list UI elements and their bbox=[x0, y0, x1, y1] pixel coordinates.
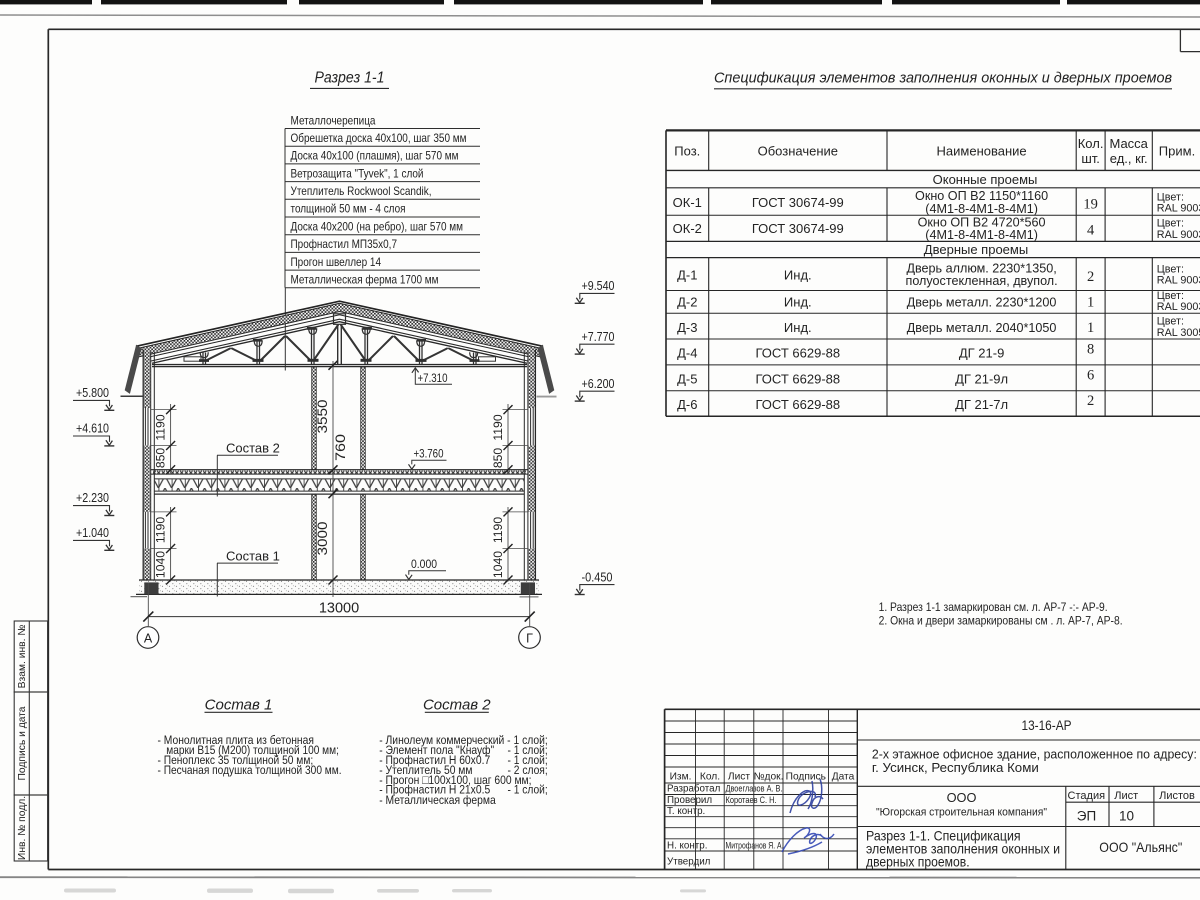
svg-text:ДГ 21-7л: ДГ 21-7л bbox=[955, 397, 1008, 412]
svg-text:+6.200: +6.200 bbox=[582, 376, 615, 391]
svg-text:Стадия: Стадия bbox=[1068, 790, 1106, 802]
svg-text:1: 1 bbox=[1087, 294, 1094, 310]
svg-text:ед., кг.: ед., кг. bbox=[1110, 151, 1148, 166]
svg-text:Д-3: Д-3 bbox=[677, 320, 697, 335]
svg-text:Наименование: Наименование bbox=[937, 143, 1027, 158]
svg-text:ОК-2: ОК-2 bbox=[673, 221, 702, 236]
svg-text:Доска 40х200 (на ребро), шаг 5: Доска 40х200 (на ребро), шаг 570 мм bbox=[291, 219, 464, 233]
svg-text:Утвердил: Утвердил bbox=[667, 856, 711, 867]
svg-text:ОК-1: ОК-1 bbox=[673, 195, 702, 210]
svg-text:0.000: 0.000 bbox=[411, 559, 437, 571]
svg-text:1. Разрез 1-1 замаркирован см.: 1. Разрез 1-1 замаркирован см. л. АР-7 -… bbox=[879, 600, 1108, 614]
svg-text:№док.: №док. bbox=[754, 771, 784, 782]
svg-text:Лист: Лист bbox=[1114, 790, 1138, 802]
svg-text:Доска 40х100 (плашмя), шаг 570: Доска 40х100 (плашмя), шаг 570 мм bbox=[291, 149, 459, 163]
svg-text:1040: 1040 bbox=[154, 551, 168, 578]
svg-text:Ветрозащита "Tyvek", 1 слой: Ветрозащита "Tyvek", 1 слой bbox=[291, 166, 424, 180]
svg-text:RAL 3005: RAL 3005 bbox=[1157, 327, 1200, 339]
svg-text:2. Окна и двери замаркированы: 2. Окна и двери замаркированы см . л. АР… bbox=[879, 614, 1123, 628]
svg-text:2: 2 bbox=[1087, 269, 1094, 285]
svg-text:+5.800: +5.800 bbox=[76, 385, 109, 400]
svg-text:1: 1 bbox=[1087, 320, 1094, 336]
svg-text:850: 850 bbox=[154, 448, 168, 469]
svg-text:Состав 2: Состав 2 bbox=[423, 696, 491, 713]
svg-text:Разработал: Разработал bbox=[667, 784, 721, 795]
svg-text:760: 760 bbox=[332, 434, 348, 461]
svg-text:Состав 1: Состав 1 bbox=[205, 696, 273, 713]
svg-text:Лист: Лист bbox=[728, 771, 750, 782]
svg-text:- 1 слой;: - 1 слой; bbox=[508, 783, 548, 797]
svg-text:RAL 9003: RAL 9003 bbox=[1157, 275, 1200, 287]
svg-text:Д-4: Д-4 bbox=[677, 346, 697, 361]
svg-text:3550: 3550 bbox=[314, 399, 330, 433]
svg-text:Утеплитель Rockwool Scandik,: Утеплитель Rockwool Scandik, bbox=[291, 184, 432, 198]
svg-text:Цвет:: Цвет: bbox=[1157, 218, 1184, 230]
svg-text:Металлочерепица: Металлочерепица bbox=[291, 113, 376, 127]
svg-text:дверных проемов.: дверных проемов. bbox=[866, 855, 970, 870]
svg-text:ДГ 21-9л: ДГ 21-9л bbox=[955, 371, 1008, 386]
svg-text:+4.610: +4.610 bbox=[76, 421, 109, 436]
svg-text:+7.770: +7.770 bbox=[582, 329, 615, 344]
svg-text:+9.540: +9.540 bbox=[582, 278, 615, 293]
svg-text:Д-1: Д-1 bbox=[677, 268, 697, 283]
svg-text:Цвет:: Цвет: bbox=[1157, 191, 1184, 203]
svg-text:(4М1-8-4М1-8-4М1): (4М1-8-4М1-8-4М1) bbox=[925, 202, 1038, 216]
svg-text:ООО "Альянс": ООО "Альянс" bbox=[1099, 839, 1182, 855]
svg-text:13-16-АР: 13-16-АР bbox=[1022, 717, 1072, 733]
svg-text:1190: 1190 bbox=[154, 517, 168, 543]
svg-text:Дверь металл. 2230*1200: Дверь металл. 2230*1200 bbox=[907, 295, 1057, 309]
svg-text:Подпись и дата: Подпись и дата bbox=[17, 706, 28, 780]
svg-text:+2.230: +2.230 bbox=[76, 490, 109, 505]
svg-text:Кол.: Кол. bbox=[1078, 136, 1104, 151]
svg-text:13000: 13000 bbox=[319, 601, 359, 617]
svg-text:"Югорская строительная компани: "Югорская строительная компания" bbox=[876, 807, 1047, 819]
svg-text:Т. контр.: Т. контр. bbox=[667, 806, 705, 817]
svg-text:Взам. инв. №: Взам. инв. № bbox=[17, 625, 28, 689]
svg-text:+7.310: +7.310 bbox=[418, 373, 448, 385]
svg-text:ГОСТ 6629-88: ГОСТ 6629-88 bbox=[755, 346, 840, 361]
svg-text:Дверные проемы: Дверные проемы bbox=[924, 242, 1028, 257]
svg-text:Металлическая ферма 1700 мм: Металлическая ферма 1700 мм bbox=[291, 273, 439, 287]
svg-text:2: 2 bbox=[1087, 393, 1094, 409]
svg-text:Цвет:: Цвет: bbox=[1157, 264, 1184, 276]
svg-text:Поз.: Поз. bbox=[674, 143, 700, 158]
svg-text:RAL 9003: RAL 9003 bbox=[1157, 229, 1200, 241]
svg-text:шт.: шт. bbox=[1081, 151, 1100, 166]
svg-text:Цвет:: Цвет: bbox=[1157, 290, 1184, 302]
svg-text:Прим.: Прим. bbox=[1159, 143, 1195, 158]
svg-text:Профнастил МП35х0,7: Профнастил МП35х0,7 bbox=[291, 237, 398, 251]
svg-text:Оконные проемы: Оконные проемы bbox=[933, 172, 1038, 187]
svg-text:Д-2: Д-2 bbox=[677, 294, 697, 309]
svg-text:RAL 9003: RAL 9003 bbox=[1157, 301, 1200, 313]
svg-text:Г: Г bbox=[526, 631, 533, 645]
svg-text:- Металлическая ферма: - Металлическая ферма bbox=[379, 793, 496, 807]
svg-text:ЭП: ЭП bbox=[1077, 809, 1096, 824]
svg-text:10: 10 bbox=[1119, 809, 1134, 824]
svg-text:+3.760: +3.760 bbox=[414, 448, 444, 460]
svg-text:полуостекленная, двупол.: полуостекленная, двупол. bbox=[906, 274, 1058, 288]
svg-text:+1.040: +1.040 bbox=[76, 525, 109, 540]
svg-text:ГОСТ 6629-88: ГОСТ 6629-88 bbox=[755, 371, 840, 386]
svg-text:Состав 1: Состав 1 bbox=[226, 548, 280, 563]
svg-text:3000: 3000 bbox=[314, 521, 330, 555]
svg-text:6: 6 bbox=[1087, 367, 1094, 383]
svg-text:Листов: Листов bbox=[1159, 790, 1195, 802]
svg-text:4: 4 bbox=[1087, 223, 1095, 239]
svg-text:- Песчаная подушка толщиной 30: - Песчаная подушка толщиной 300 мм. bbox=[158, 763, 342, 777]
svg-text:Обозначение: Обозначение bbox=[758, 143, 838, 158]
svg-text:1040: 1040 bbox=[491, 551, 505, 578]
svg-text:толщиной 50 мм - 4 слоя: толщиной 50 мм - 4 слоя bbox=[291, 202, 406, 216]
svg-text:1190: 1190 bbox=[491, 517, 505, 543]
svg-text:Прогон швеллер 14: Прогон швеллер 14 bbox=[291, 255, 382, 269]
svg-text:Цвет:: Цвет: bbox=[1157, 316, 1184, 328]
svg-text:19: 19 bbox=[1083, 197, 1098, 213]
svg-text:8: 8 bbox=[1087, 342, 1094, 358]
svg-text:(4М1-8-4М1-8-4М1): (4М1-8-4М1-8-4М1) bbox=[925, 228, 1038, 242]
svg-text:Обрешетка доска 40х100, шаг 35: Обрешетка доска 40х100, шаг 350 мм bbox=[291, 131, 467, 145]
svg-text:850: 850 bbox=[491, 448, 505, 469]
svg-text:Коротаев С. Н.: Коротаев С. Н. bbox=[726, 795, 777, 805]
svg-text:RAL 9003: RAL 9003 bbox=[1157, 203, 1200, 215]
svg-text:Дверь металл. 2040*1050: Дверь металл. 2040*1050 bbox=[907, 321, 1057, 335]
svg-text:Состав 2: Состав 2 bbox=[226, 441, 280, 456]
svg-text:Д-6: Д-6 bbox=[677, 397, 697, 412]
svg-text:Разрез 1-1: Разрез 1-1 bbox=[315, 70, 385, 87]
svg-text:Изм.: Изм. bbox=[670, 771, 692, 782]
svg-text:Инд.: Инд. bbox=[784, 268, 812, 283]
svg-text:Инд.: Инд. bbox=[784, 320, 812, 335]
svg-text:Проверил: Проверил bbox=[667, 795, 712, 806]
svg-text:Масса: Масса bbox=[1109, 136, 1148, 151]
svg-text:г. Усинск, Республика Коми: г. Усинск, Республика Коми bbox=[872, 760, 1039, 775]
svg-text:Спецификация элементов заполне: Спецификация элементов заполнения оконны… bbox=[714, 70, 1172, 87]
svg-text:ООО: ООО bbox=[947, 790, 977, 805]
svg-text:-0.450: -0.450 bbox=[582, 569, 613, 584]
svg-text:1190: 1190 bbox=[154, 414, 168, 440]
svg-text:Кол.: Кол. bbox=[700, 771, 720, 782]
svg-text:А: А bbox=[144, 631, 153, 645]
svg-text:Д-5: Д-5 bbox=[677, 371, 697, 386]
svg-text:Инв. № подл.: Инв. № подл. bbox=[17, 796, 28, 860]
svg-text:Двоеглазов А. В.: Двоеглазов А. В. bbox=[726, 784, 783, 794]
svg-text:ГОСТ 30674-99: ГОСТ 30674-99 bbox=[752, 221, 844, 236]
svg-text:Митрофанов Я. А.: Митрофанов Я. А. bbox=[726, 840, 784, 850]
svg-text:ГОСТ 30674-99: ГОСТ 30674-99 bbox=[752, 195, 844, 210]
svg-text:Н. контр.: Н. контр. bbox=[667, 840, 707, 851]
svg-text:ДГ 21-9: ДГ 21-9 bbox=[959, 346, 1004, 361]
svg-text:Инд.: Инд. bbox=[784, 294, 812, 309]
svg-text:Дата: Дата bbox=[832, 771, 855, 782]
svg-text:ГОСТ 6629-88: ГОСТ 6629-88 bbox=[755, 397, 840, 412]
svg-text:1190: 1190 bbox=[491, 414, 505, 440]
